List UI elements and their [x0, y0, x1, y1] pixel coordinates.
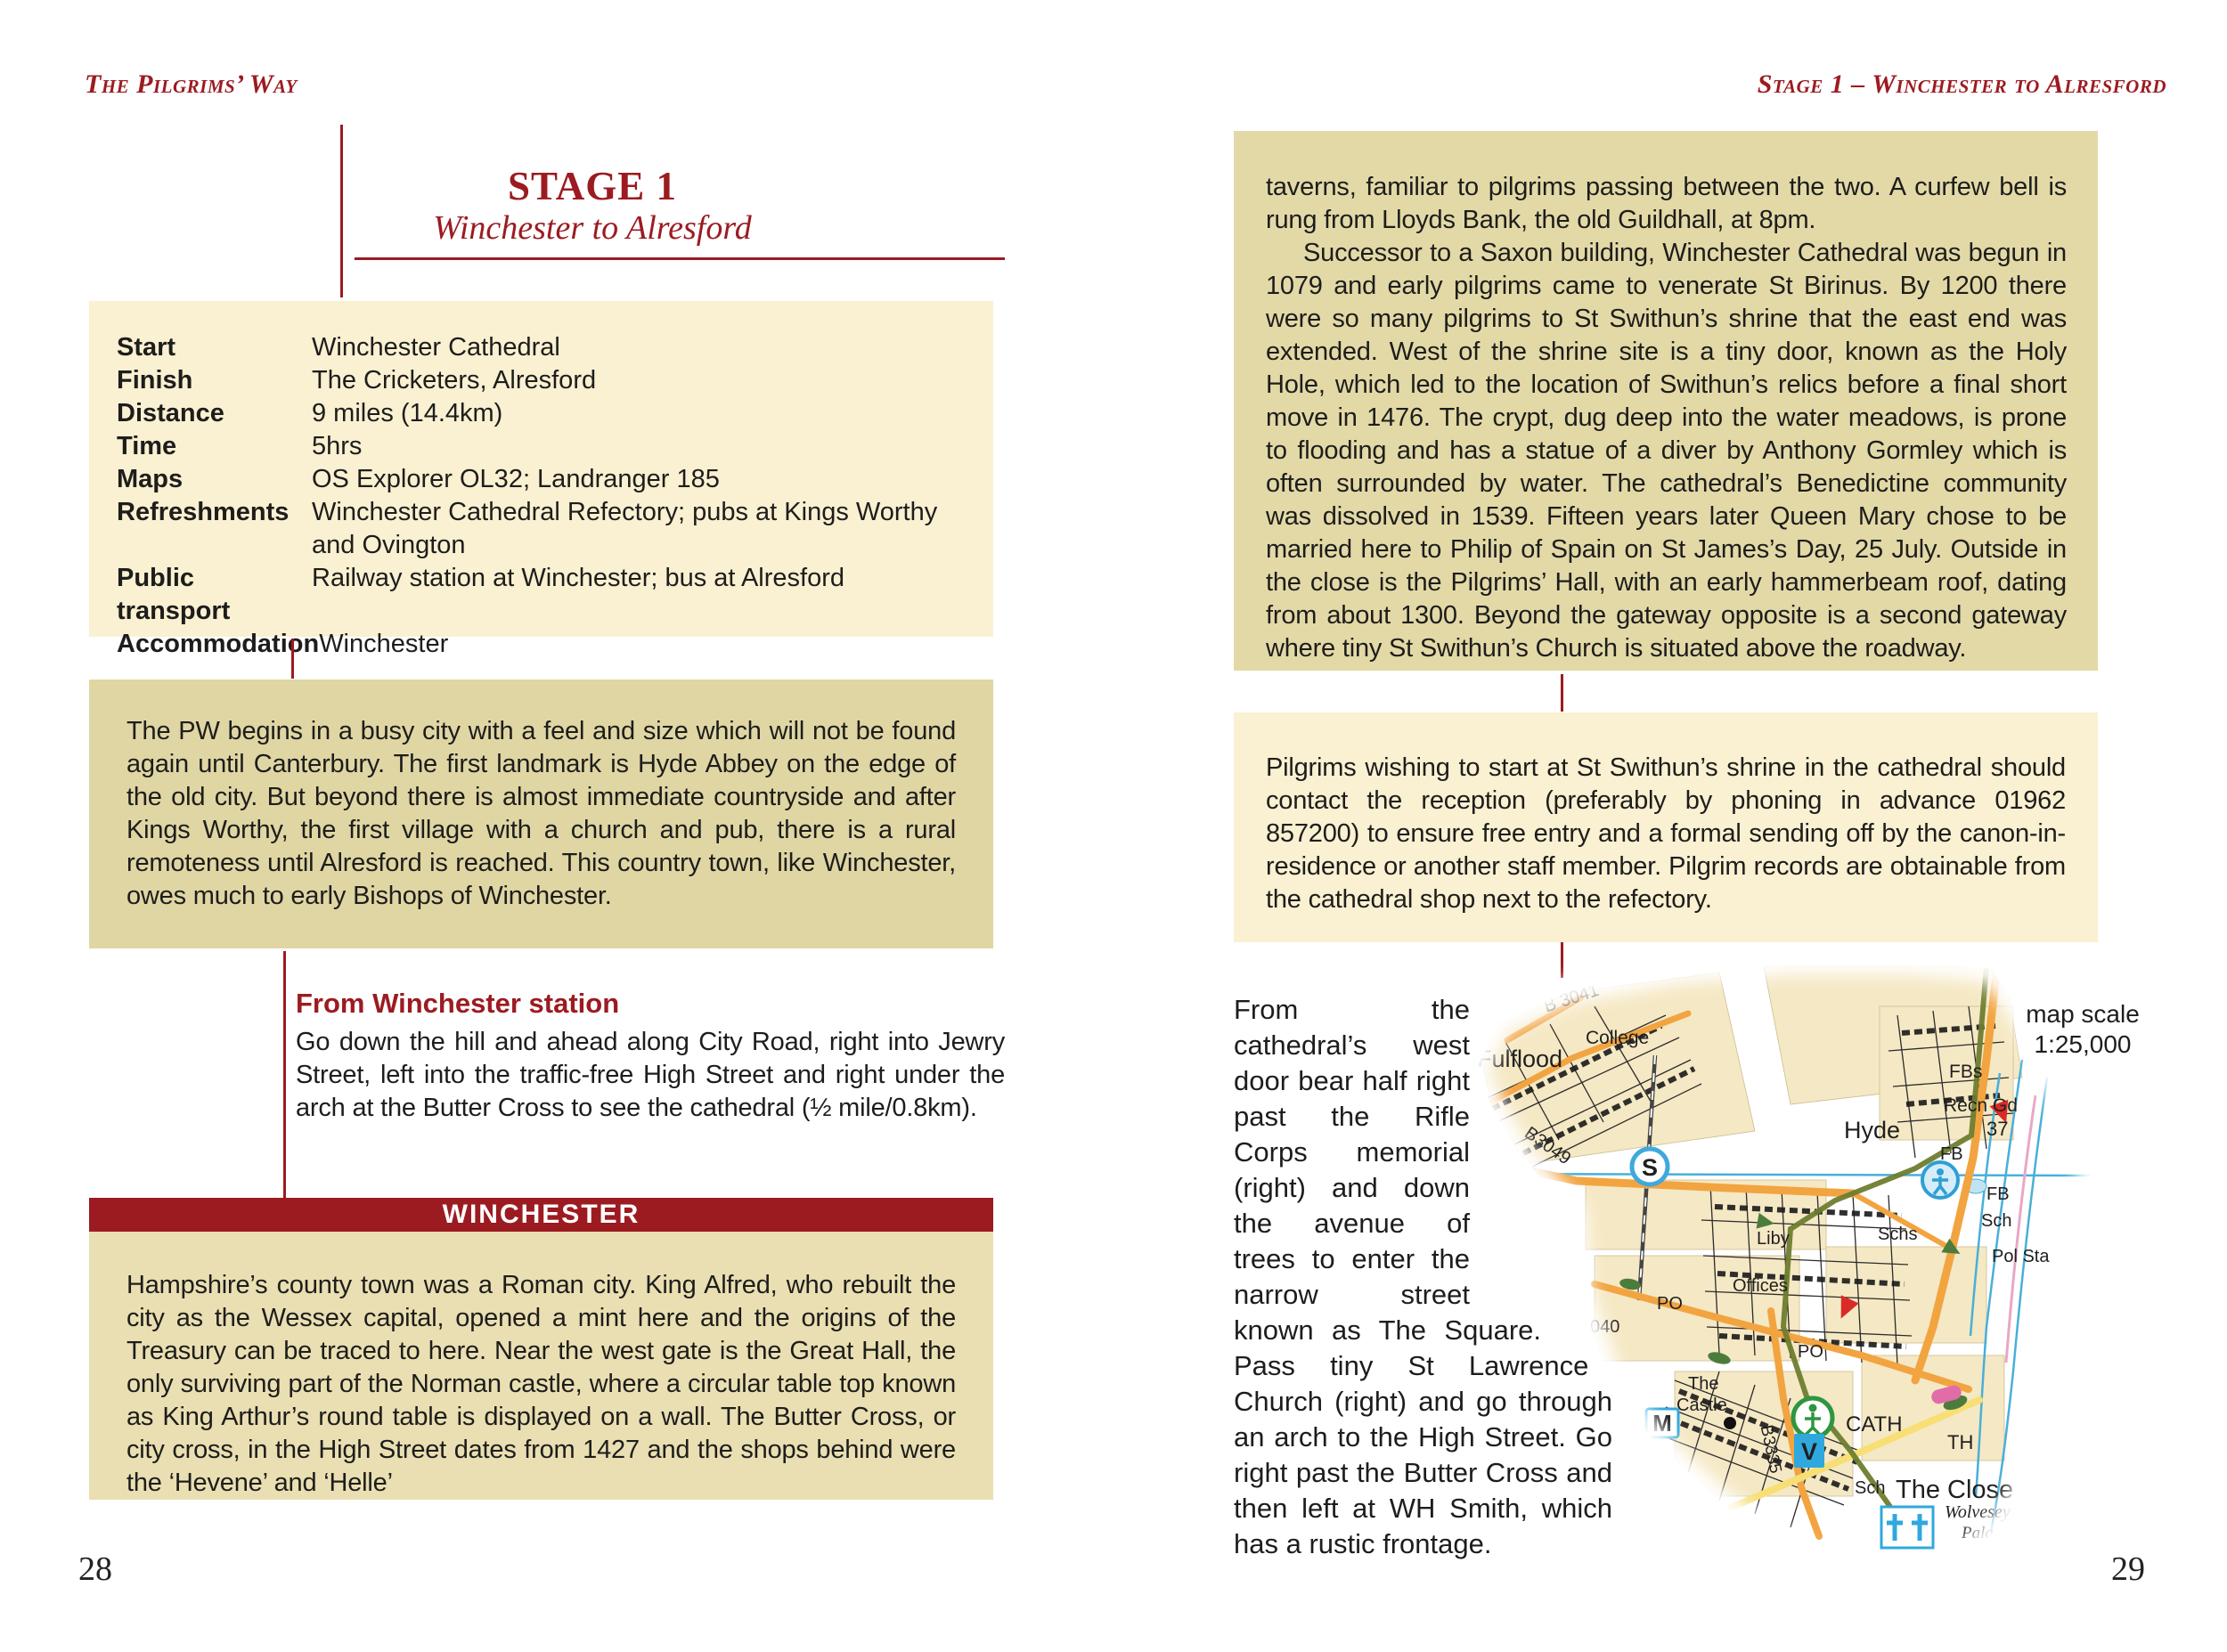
station-section: From Winchester station Go down the hill…: [296, 987, 1005, 1125]
section-rule: [283, 951, 286, 1198]
stage-title: STAGE 1: [356, 163, 828, 209]
station-paragraph: Go down the hill and ahead along City Ro…: [296, 1026, 1005, 1125]
info-row: AccommodationWinchester: [117, 628, 958, 661]
info-label: Accommodation: [117, 628, 319, 661]
info-value: Winchester Cathedral Refectory; pubs at …: [312, 496, 958, 562]
info-value: Winchester Cathedral: [312, 331, 958, 364]
winchester-banner: WINCHESTER: [89, 1198, 993, 1232]
intro-box: The PW begins in a busy city with a feel…: [89, 680, 993, 948]
page-number-right: 29: [2076, 1550, 2145, 1589]
winchester-paragraph: Hampshire’s county town was a Roman city…: [126, 1269, 956, 1500]
winchester-box: Hampshire’s county town was a Roman city…: [89, 1232, 993, 1500]
info-row: Public transportRailway station at Winch…: [117, 562, 958, 628]
info-label: Finish: [117, 364, 312, 397]
info-row: MapsOS Explorer OL32; Landranger 185: [117, 463, 958, 496]
pilgrims-box: Pilgrims wishing to start at St Swithun’…: [1234, 712, 2098, 942]
info-label: Maps: [117, 463, 312, 496]
page-number-left: 28: [78, 1550, 112, 1589]
cathedral-paragraph-1: taverns, familiar to pilgrims passing be…: [1266, 171, 2067, 237]
info-label: Refreshments: [117, 496, 312, 562]
connector-rule-1: [291, 639, 294, 679]
intro-paragraph: The PW begins in a busy city with a feel…: [126, 715, 956, 913]
stage-subtitle: Winchester to Alresford: [356, 208, 828, 248]
info-value: 5hrs: [312, 430, 958, 463]
info-row: Distance9 miles (14.4km): [117, 397, 958, 430]
info-label: Start: [117, 331, 312, 364]
info-value: OS Explorer OL32; Landranger 185: [312, 463, 958, 496]
info-row: FinishThe Cricketers, Alresford: [117, 364, 958, 397]
stage-info-box: StartWinchester Cathedral FinishThe Cric…: [89, 301, 993, 637]
info-label: Time: [117, 430, 312, 463]
stage-rule-top: [340, 125, 343, 297]
info-row: Time5hrs: [117, 430, 958, 463]
info-value: Railway station at Winchester; bus at Al…: [312, 562, 958, 628]
info-label: Distance: [117, 397, 312, 430]
pilgrims-paragraph: Pilgrims wishing to start at St Swithun’…: [1266, 752, 2066, 916]
info-value: Winchester: [319, 628, 958, 661]
connector-rule-2: [1561, 674, 1563, 712]
cathedral-box: taverns, familiar to pilgrims passing be…: [1234, 131, 2098, 671]
stage-underline: [355, 257, 1005, 260]
cathedral-paragraph-2: Successor to a Saxon building, Wincheste…: [1266, 237, 2067, 665]
book-spread: The Pilgrims’ Way STAGE 1 Winchester to …: [0, 0, 2227, 1652]
info-value: 9 miles (14.4km): [312, 397, 958, 430]
info-row: StartWinchester Cathedral: [117, 331, 958, 364]
info-row: RefreshmentsWinchester Cathedral Refecto…: [117, 496, 958, 562]
info-label: Public transport: [117, 562, 312, 628]
station-heading: From Winchester station: [296, 987, 1005, 1021]
right-running-header: Stage 1 – Winchester to Alresford: [1336, 69, 2166, 100]
info-value: The Cricketers, Alresford: [312, 364, 958, 397]
route-description-section: From the cathedral’s west door bear half…: [1234, 978, 2191, 1619]
left-running-header: The Pilgrims’ Way: [85, 69, 298, 100]
